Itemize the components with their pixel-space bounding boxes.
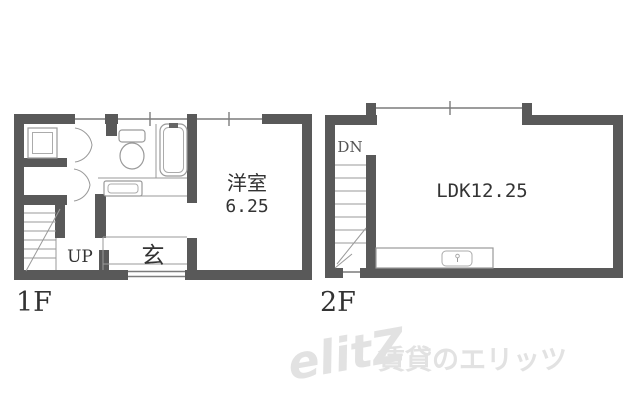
wall-segment	[613, 115, 623, 278]
stairs-down-label: DN	[337, 138, 362, 156]
wall-segment	[366, 103, 376, 125]
bathtub-tap	[169, 123, 178, 128]
floor2-plan: DN LDK12.25 2F	[320, 101, 623, 318]
stairs-up	[24, 209, 60, 271]
floor1-plan: UP 玄 洋室 6.25 1F	[14, 112, 312, 318]
door-arc	[74, 169, 90, 201]
kitchen-counter-top	[376, 248, 493, 268]
kitchen-counter	[376, 248, 493, 268]
wall-segment	[14, 270, 128, 280]
washbasin-counter	[104, 181, 142, 196]
wall-segment	[522, 115, 623, 125]
wall-segment	[187, 124, 197, 203]
floor2-label: 2F	[320, 287, 356, 318]
watermark-text: 賃貸のエリッツ	[377, 344, 567, 376]
wall-segment	[105, 114, 118, 124]
wall-segment	[360, 268, 623, 278]
wall-segment	[99, 250, 109, 270]
stairs-down	[335, 165, 366, 268]
room-label: LDK12.25	[436, 180, 528, 202]
floorplan-image: UP 玄 洋室 6.25 1F	[0, 0, 640, 416]
wall-segment	[325, 268, 343, 278]
entrance-label: 玄	[142, 243, 165, 269]
wall-segment	[185, 270, 312, 280]
bathtub	[160, 123, 187, 176]
room-label: 洋室	[227, 171, 267, 195]
shower-pan	[28, 128, 57, 158]
wall-segment	[366, 155, 376, 270]
stairs-up-label: UP	[67, 247, 93, 267]
door-arc	[75, 128, 92, 162]
stair-diagonal	[337, 228, 366, 264]
wall-segment	[14, 195, 67, 205]
toilet-bowl	[120, 143, 144, 169]
room-size-label: 6.25	[225, 196, 268, 217]
wall-segment	[302, 114, 312, 280]
wall-segment	[187, 238, 197, 270]
wall-segment	[95, 194, 106, 238]
wall-segment	[106, 124, 117, 136]
toilet	[119, 130, 145, 169]
watermark: elitZ 賃貸のエリッツ	[284, 317, 567, 391]
wall-segment	[14, 158, 67, 167]
bathtub-outer	[160, 124, 187, 176]
toilet-tank	[119, 130, 145, 142]
floorplan-svg: UP 玄 洋室 6.25 1F	[0, 0, 640, 416]
wall-segment	[187, 114, 197, 124]
floor1-label: 1F	[16, 287, 52, 318]
wall-segment	[325, 115, 335, 278]
washbasin-outer	[104, 181, 142, 196]
